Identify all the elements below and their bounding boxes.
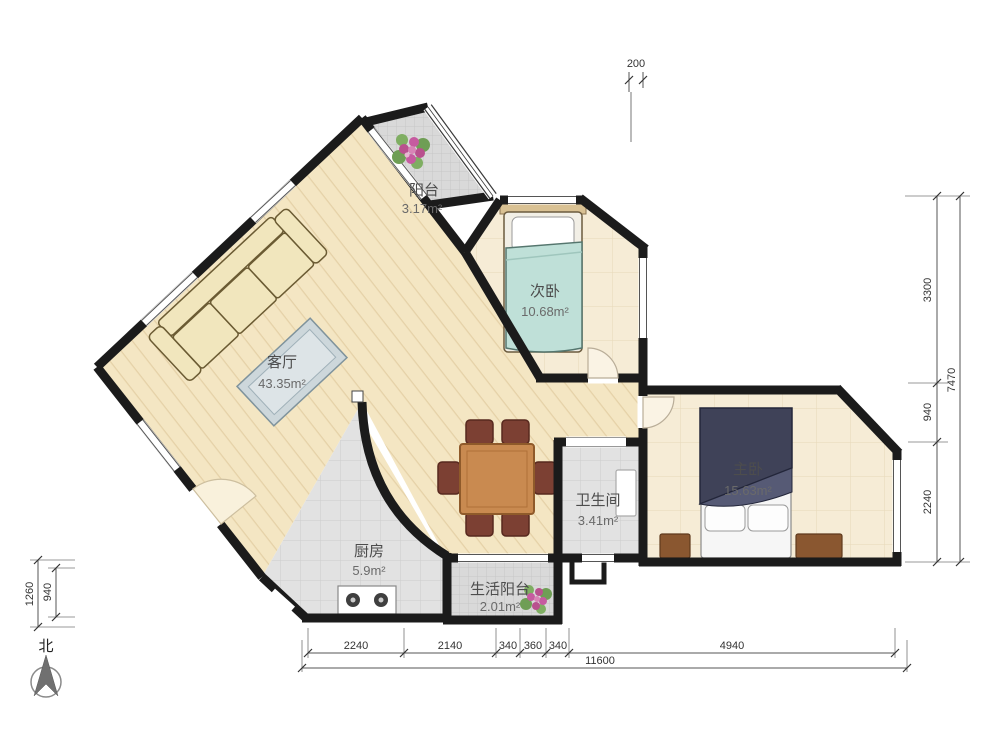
room-area-kitchen: 5.9m²: [352, 563, 386, 578]
dim-top-200: 200: [627, 58, 645, 70]
dim-left-940: 940: [42, 583, 54, 601]
dim-bottom-4940: 4940: [720, 640, 744, 652]
nightstand: [660, 534, 690, 558]
dim-right-total-7470: 7470: [946, 368, 958, 392]
room-area-service-balcony: 2.01m²: [480, 599, 521, 614]
dim-bottom-total-11600: 11600: [585, 655, 615, 667]
dining-chair: [466, 420, 493, 444]
room-label-service-balcony: 生活阳台: [470, 581, 530, 598]
dining-chair: [534, 462, 556, 494]
dim-bottom-2140: 2140: [438, 640, 462, 652]
room-label-living-room: 客厅: [267, 354, 297, 371]
dim-left-1260: 1260: [24, 582, 36, 606]
dim-bottom-340b: 340: [549, 640, 567, 652]
dining-chair: [438, 462, 460, 494]
dim-bottom-2240: 2240: [344, 640, 368, 652]
north-compass: 北: [31, 638, 61, 697]
dim-bottom-340a: 340: [499, 640, 517, 652]
nightstand: [796, 534, 842, 558]
room-area-bathroom: 3.41m²: [578, 513, 619, 528]
room-label-kitchen: 厨房: [354, 543, 384, 560]
dim-bottom-360: 360: [524, 640, 542, 652]
dining-table: [460, 444, 534, 514]
duct-shaft: [572, 560, 604, 582]
dim-right-940: 940: [922, 403, 934, 421]
stove: [338, 586, 396, 614]
dim-right-3300: 3300: [922, 278, 934, 302]
room-label-bathroom: 卫生间: [575, 492, 620, 509]
dining-chair: [502, 420, 529, 444]
room-label-second-bedroom: 次卧: [530, 283, 560, 300]
north-label: 北: [38, 638, 53, 655]
north-arrow-icon: [34, 655, 58, 696]
room-area-balcony: 3.17m²: [402, 201, 443, 216]
floor-plan-page: 阳台 3.17m² 次卧 10.68m² 客厅 43.35m² 主卧 15.63…: [0, 0, 1000, 750]
dining-chair: [502, 512, 529, 536]
room-area-second-bedroom: 10.68m²: [521, 304, 569, 319]
dim-right-2240: 2240: [922, 490, 934, 514]
room-label-balcony: 阳台: [409, 182, 439, 199]
room-area-master-bedroom: 15.63m²: [724, 483, 772, 498]
floor-plan-canvas: 阳台 3.17m² 次卧 10.68m² 客厅 43.35m² 主卧 15.63…: [0, 0, 1000, 750]
room-label-master-bedroom: 主卧: [733, 461, 763, 478]
room-area-living-room: 43.35m²: [258, 376, 306, 391]
dining-chair: [466, 512, 493, 536]
